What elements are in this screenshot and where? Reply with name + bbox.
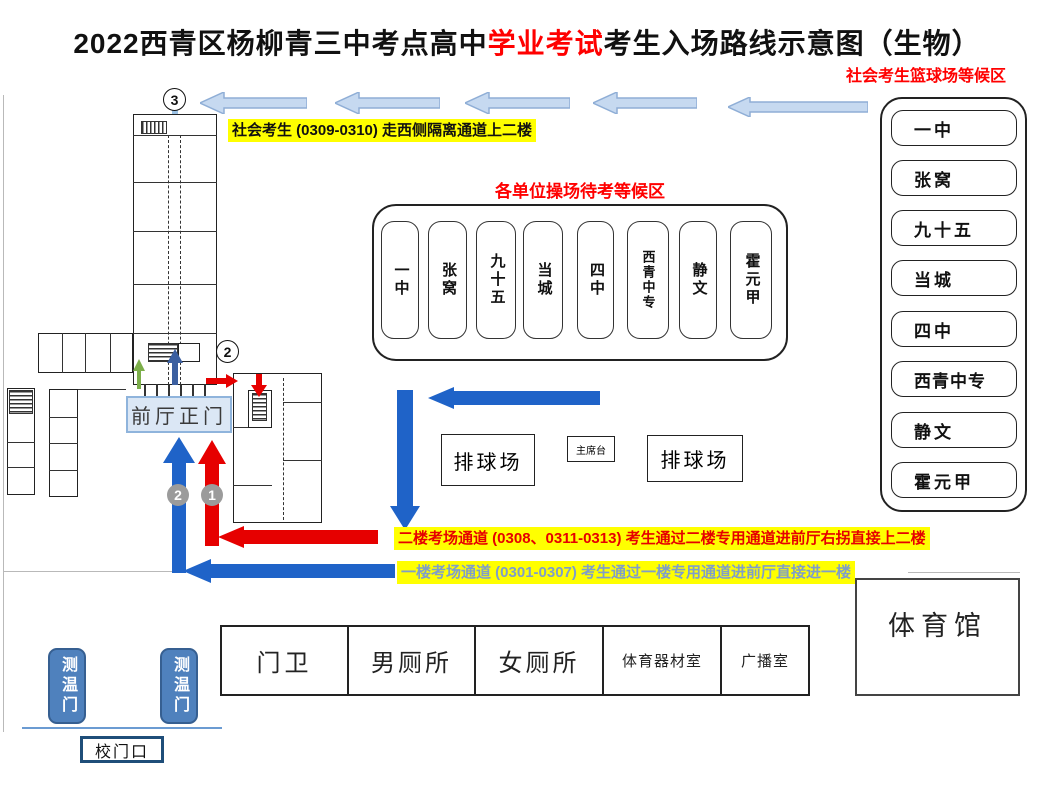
rostrum-box: 主席台 — [567, 436, 615, 462]
left-building-a-line — [7, 467, 35, 468]
tower-stairs-icon — [141, 121, 167, 134]
playground-unit: 当城 — [523, 221, 563, 339]
playground-unit: 九十五 — [476, 221, 516, 339]
facility-guard-room: 门卫 — [222, 627, 347, 694]
green-up-arrow-icon — [133, 359, 145, 389]
west-wing-divider — [85, 333, 86, 373]
tower-floor-line — [133, 231, 217, 232]
title-part1: 2022西青区杨柳青三中考点高中 — [73, 28, 487, 59]
connector-line — [78, 389, 126, 390]
playground-unit: 西青中专 — [627, 221, 669, 339]
social-route-arrow-2 — [335, 92, 440, 114]
gymnasium-label: 体育馆 — [888, 604, 987, 643]
basketball-unit: 九十五 — [891, 210, 1017, 246]
tower-floor-line — [133, 333, 217, 334]
volleyball-left-label: 排球场 — [454, 446, 523, 475]
title-part2: 考生入场路线示意图（生物） — [604, 28, 981, 59]
east-wing-line — [283, 460, 322, 461]
left-building-b-line — [49, 470, 78, 471]
basketball-unit: 霍元甲 — [891, 462, 1017, 498]
rostrum-label: 主席台 — [576, 442, 606, 457]
front-hall-label: 前厅正门 — [131, 400, 227, 429]
facility-row: 门卫 男厕所 女厕所 体育器材室 广播室 — [220, 625, 810, 696]
basketball-unit: 当城 — [891, 260, 1017, 296]
basketball-unit: 四中 — [891, 311, 1017, 347]
temp-check-gate-left: 测温门 — [48, 648, 86, 724]
left-building-stairs-icon — [9, 390, 33, 414]
basketball-unit: 一中 — [891, 110, 1017, 146]
playground-unit-label: 静文 — [691, 262, 706, 298]
route-marker-3: 3 — [163, 88, 186, 111]
tower-floor-line — [133, 182, 217, 183]
red-right-arrow-icon — [206, 374, 238, 388]
playground-unit-label: 张窝 — [440, 262, 455, 298]
facility-broadcast-room: 广播室 — [720, 627, 808, 694]
west-wing-divider — [110, 333, 111, 373]
facility-mens-toilet: 男厕所 — [347, 627, 474, 694]
basketball-waiting-title: 社会考生篮球场等候区 — [846, 62, 1006, 86]
facility-equipment-room: 体育器材室 — [602, 627, 720, 694]
boundary-line-ground-left — [3, 571, 185, 572]
playground-unit-label: 四中 — [588, 262, 603, 298]
west-wing-divider — [62, 333, 63, 373]
temp-gate-right-label: 测温门 — [171, 656, 187, 716]
route-marker-1-arrow: 1 — [201, 484, 223, 506]
waiting-route-left-arrow — [428, 387, 600, 409]
floor1-route-note: 一楼考场通道 (0301-0307) 考生通过一楼专用通道进前厅直接进一楼 — [397, 561, 855, 584]
east-wing-stairs-icon — [252, 393, 267, 421]
floor1-route-left-arrow — [183, 559, 395, 583]
basketball-unit: 张窝 — [891, 160, 1017, 196]
volleyball-court-right: 排球场 — [647, 435, 743, 482]
volleyball-right-label: 排球场 — [661, 444, 730, 473]
playground-waiting-title: 各单位操场待考等候区 — [372, 177, 788, 202]
social-route-arrow-3 — [465, 92, 570, 114]
tower-floor-line — [133, 135, 217, 136]
front-hall-box: 前厅正门 — [126, 396, 232, 433]
social-route-arrow-4 — [593, 92, 697, 114]
tower-floor-line — [133, 284, 217, 285]
waiting-route-down-arrow — [390, 390, 420, 530]
page-title: 2022西青区杨柳青三中考点高中学业考试考生入场路线示意图（生物） — [0, 22, 1054, 62]
basketball-unit: 西青中专 — [891, 361, 1017, 397]
floor2-route-note: 二楼考场通道 (0308、0311-0313) 考生通过二楼专用通道进前厅右拐直… — [394, 527, 930, 550]
left-building-b-line — [49, 417, 78, 418]
playground-unit: 霍元甲 — [730, 221, 772, 339]
gate-threshold-line — [22, 727, 222, 729]
east-wing-building — [233, 373, 322, 523]
left-building-a-line — [7, 442, 35, 443]
school-gate-box: 校门口 — [80, 736, 164, 763]
basketball-unit: 静文 — [891, 412, 1017, 448]
playground-unit-label: 一中 — [393, 262, 408, 298]
east-wing-line — [233, 485, 272, 486]
route-marker-2-top: 2 — [216, 340, 239, 363]
red-down-arrow-icon — [251, 374, 267, 397]
school-gate-label: 校门口 — [95, 738, 149, 762]
gymnasium-box: 体育馆 — [855, 578, 1020, 696]
east-wing-corridor-line — [283, 378, 284, 520]
playground-unit: 一中 — [381, 221, 419, 339]
boundary-line-left — [3, 95, 4, 732]
east-wing-line — [283, 402, 322, 403]
social-route-note: 社会考生 (0309-0310) 走西侧隔离通道上二楼 — [228, 119, 536, 142]
route-marker-2-arrow: 2 — [167, 484, 189, 506]
blue-up-arrow-icon — [167, 349, 183, 385]
volleyball-court-left: 排球场 — [441, 434, 535, 486]
temp-gate-left-label: 测温门 — [59, 656, 75, 716]
facility-womens-toilet: 女厕所 — [474, 627, 602, 694]
title-highlight: 学业考试 — [488, 28, 604, 59]
left-building-b-line — [49, 443, 78, 444]
social-route-arrow-1 — [200, 92, 307, 114]
temp-check-gate-right: 测温门 — [160, 648, 198, 724]
floor2-route-left-arrow — [218, 526, 378, 548]
playground-unit-label: 西青中专 — [642, 250, 655, 310]
route-map-canvas: 2022西青区杨柳青三中考点高中学业考试考生入场路线示意图（生物） — [0, 0, 1054, 791]
boundary-line-ground-right — [908, 572, 1020, 573]
playground-unit: 静文 — [679, 221, 717, 339]
playground-unit-label: 霍元甲 — [744, 253, 759, 307]
playground-unit: 四中 — [577, 221, 614, 339]
playground-unit: 张窝 — [428, 221, 467, 339]
social-route-arrow-5 — [728, 97, 868, 117]
playground-unit-label: 九十五 — [489, 253, 504, 307]
playground-unit-label: 当城 — [536, 262, 551, 298]
